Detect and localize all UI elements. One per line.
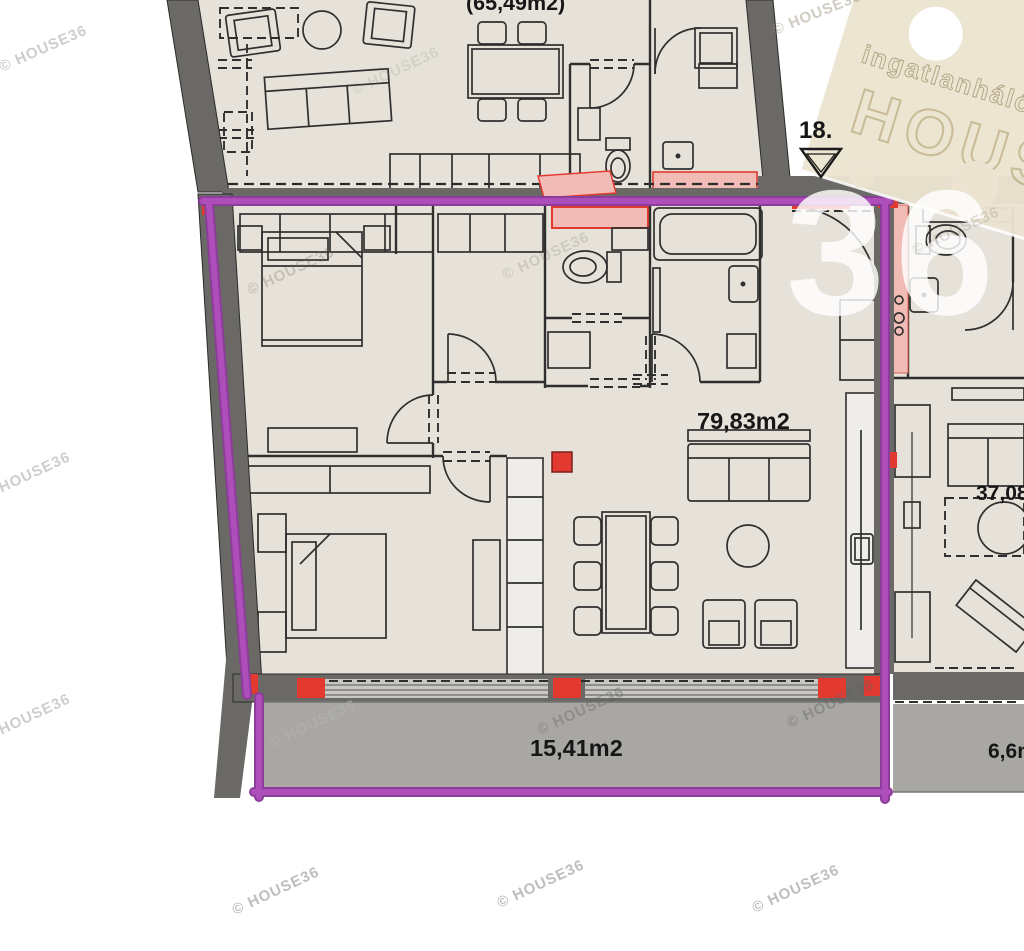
main-apartment [212,206,878,695]
south-wall [233,674,890,702]
upper-apartment [167,0,791,192]
floor-plan-page: ingatlanhálózat HOUSE 36 18. (65,49m2) 7… [0,0,1024,951]
watermark: © HOUSE36 [495,856,588,911]
red-vent-strip [538,171,616,198]
unit-number-label: 18. [799,117,832,144]
watermark: © HOUSE36 [0,22,90,76]
upper-area-label: (65,49m2) [466,0,565,15]
main-balcony-label: 15,41m2 [530,735,623,761]
right-area-label: 37,08m2 [976,482,1024,505]
lower-left-wall-wedge [214,648,259,798]
wc-red-box [552,207,648,228]
upper-apartment-floor [196,0,766,190]
upper-red-strip [653,172,757,189]
right-balcony-label: 6,6m2 [988,740,1024,763]
watermark: © HOUSE36 [0,448,73,503]
watermark: © HOUSE36 [230,863,323,918]
watermark: © HOUSE36 [750,861,843,916]
logo-number-text: 36 [786,153,1004,352]
right-balcony [893,672,1024,792]
watermark: © HOUSE36 [0,690,73,745]
kitchen-counter [846,393,878,668]
main-area-label: 79,83m2 [697,408,790,434]
red-marker [552,452,572,472]
floor-plan-svg: ingatlanhálózat HOUSE 36 18. (65,49m2) 7… [0,0,1024,951]
closet-column [507,458,543,678]
